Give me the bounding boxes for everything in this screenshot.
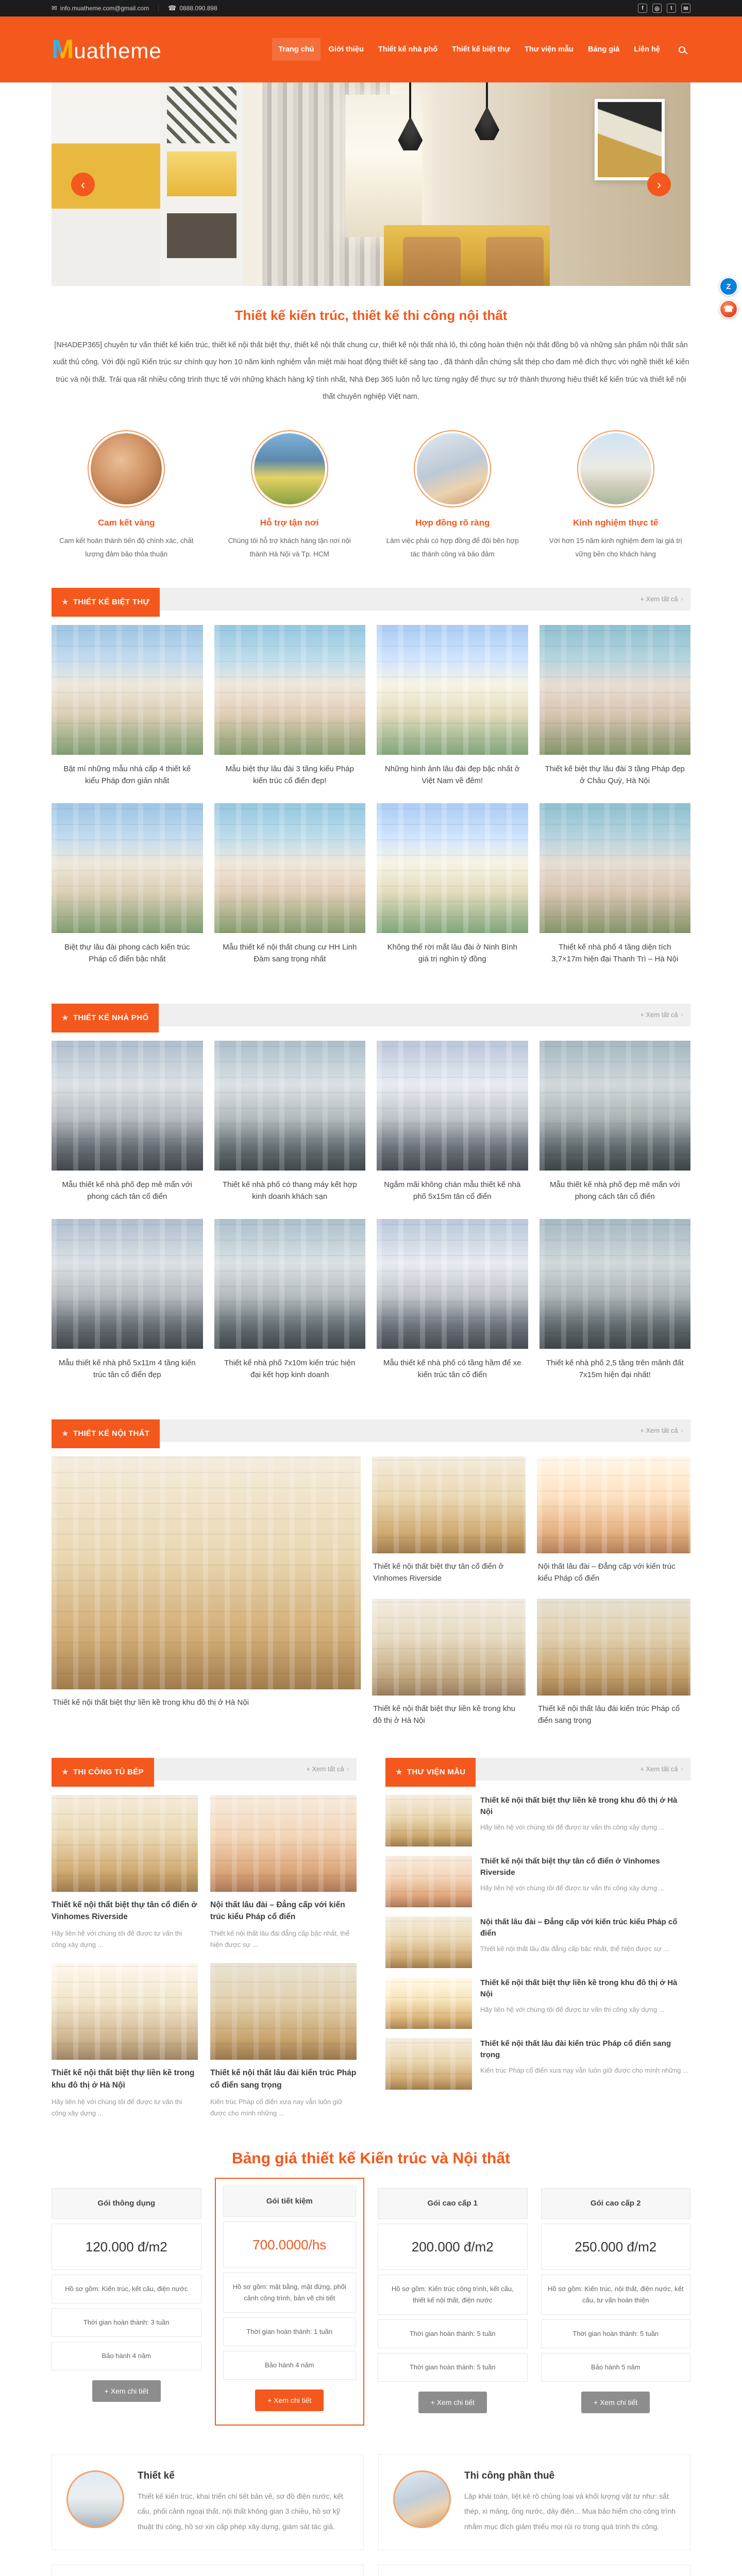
view-all-tu-bep[interactable]: + Xem tất cả › — [306, 1765, 357, 1773]
plan-name: Gói cao cấp 2 — [541, 2188, 691, 2219]
nav-thiet-ke-nha-pho[interactable]: Thiết kế nhà phố — [372, 38, 444, 61]
chevron-right-icon: › — [681, 1765, 683, 1773]
service-desc: Lập khái toán, liệt kê rõ chủng loại và … — [464, 2489, 676, 2534]
post-thumbnail — [377, 1219, 528, 1349]
instagram-icon[interactable]: ◎ — [652, 4, 662, 13]
topbar-email-text: info.muatheme.com@gmail.com — [60, 5, 149, 12]
hero-scene-pendant-lamp — [486, 82, 488, 108]
post-card[interactable]: Mẫu thiết kế nội thất chung cư HH Linh Đ… — [214, 803, 366, 977]
post-title: Thiết kế nội thất lâu đài kiến trúc Pháp… — [210, 2067, 357, 2091]
section-title-thu-vien: ★ THƯ VIỆN MẪU — [385, 1758, 476, 1787]
view-all-text: + Xem tất cả — [306, 1765, 344, 1773]
section-head-thu-vien: ★ THƯ VIỆN MẪU + Xem tất cả › — [385, 1758, 690, 1781]
chevron-right-icon: › — [681, 1427, 683, 1434]
nav-thiet-ke-biet-thu[interactable]: Thiết kế biệt thự — [446, 38, 516, 61]
post-thumbnail — [539, 625, 691, 755]
post-card[interactable]: Thiết kế nội thất biệt thự tân cổ điển ở… — [372, 1456, 526, 1588]
feature-cam-ket-vang: Cam kết vàng Cam kết hoàn thành tiến độ … — [52, 430, 201, 561]
thu-vien-list: Thiết kế nội thất biệt thự liền kề trong… — [385, 1795, 690, 2090]
plan-feature: Thời gian hoàn thành: 5 tuần — [541, 2319, 691, 2348]
post-title: Mẫu thiết kế nội thất chung cư HH Linh Đ… — [214, 933, 366, 977]
post-thumbnail — [385, 1977, 472, 2029]
post-excerpt: Thiết kế nội thất lâu đài đẳng cấp bậc n… — [210, 1928, 357, 1951]
post-thumbnail — [214, 1041, 366, 1171]
service-title: Thiết kế — [138, 2470, 349, 2482]
post-title: Thiết kế nhà phố 2,5 tầng trên mảnh đất … — [539, 1349, 691, 1393]
section-title-noi-that: ★ THIẾT KẾ NỘI THẤT — [52, 1419, 160, 1448]
feature-kinh-nghiem-thuc-te: Kinh nghiệm thực tế Với hơn 15 năm kinh … — [541, 430, 691, 561]
post-title: Thiết kế nội thất biệt thự liền kề trong… — [480, 1795, 690, 1818]
post-title: Thiết kế nội thất biệt thự liền kề trong… — [480, 1977, 690, 2001]
feature-desc: Cam kết hoàn thành tiến độ chính xác, ch… — [52, 534, 201, 561]
chevron-right-icon: › — [657, 178, 662, 191]
post-thumbnail — [385, 1856, 472, 1907]
plan-detail-button[interactable]: + Xem chi tiết — [255, 2389, 324, 2411]
post-title: Thiết kế nội thất biệt thự tân cổ điển ở… — [372, 1553, 526, 1588]
hero-carousel: ‹ › — [52, 82, 690, 286]
post-card[interactable]: Thiết kế nội thất lâu đài kiến trúc Pháp… — [537, 1599, 690, 1730]
topbar-phone-link[interactable]: ☎ 0888.090.898 — [168, 4, 217, 12]
section-head-tu-bep: ★ THI CÔNG TỦ BẾP + Xem tất cả › — [52, 1758, 357, 1781]
post-card[interactable]: Mẫu thiết kế nhà phố có tầng hầm để xe k… — [377, 1219, 528, 1393]
section-title-text: THI CÔNG TỦ BẾP — [73, 1768, 144, 1776]
villa-photo — [580, 433, 651, 504]
list-item[interactable]: Thiết kế nội thất biệt thự liền kề trong… — [385, 1795, 690, 1846]
post-card[interactable]: Mẫu thiết kế nhà phố 5x11m 4 tầng kiến t… — [52, 1219, 203, 1393]
post-thumbnail — [385, 1795, 472, 1846]
post-title: Thiết kế nhà phố 7x10m kiến trúc hiện đạ… — [214, 1349, 366, 1393]
list-item[interactable]: Nội thất lâu đài – Đẳng cấp với kiến trú… — [385, 1917, 690, 1968]
post-title: Thiết kế nhà phố có thang máy kết hợp ki… — [214, 1171, 366, 1214]
plan-feature: Bảo hành 4 năm — [223, 2351, 357, 2380]
post-title: Nội thất lâu đài – Đẳng cấp với kiến trú… — [480, 1917, 690, 1940]
list-item[interactable]: Thiết kế nội thất biệt thự tân cổ điển ở… — [385, 1856, 690, 1907]
view-all-text: + Xem tất cả — [640, 1011, 678, 1019]
service-thiet-ke: Thiết kế Thiết kế kiến trúc, khai triển … — [52, 2454, 364, 2550]
pricing-plan-cao-cap-2: Gói cao cấp 2 250.000 đ/m2 Hồ sơ gồm: Ki… — [541, 2188, 691, 2413]
list-item[interactable]: Thiết kế nội thất biệt thự liền kề trong… — [385, 1977, 690, 2029]
post-title: Thiết kế nội thất biệt thự liền kề trong… — [372, 1696, 526, 1730]
post-thumbnail — [214, 803, 366, 933]
section-title-text: THIẾT KẾ NHÀ PHỐ — [73, 1013, 148, 1022]
feature-desc: Với hơn 15 năm kinh nghiệm đem lại giá t… — [541, 534, 691, 561]
plan-detail-button[interactable]: + Xem chi tiết — [418, 2392, 487, 2413]
nha-pho-grid-row-1: Mẫu thiết kế nhà phố đẹp mê mẩn với phon… — [52, 1041, 690, 1214]
plan-price: 120.000 đ/m2 — [52, 2224, 201, 2270]
writing-hand-photo — [393, 2470, 451, 2528]
plan-feature: Hồ sơ gồm: Kiến trúc công trình, kết cấu… — [378, 2275, 528, 2315]
main-nav: Trang chủ Giới thiệu Thiết kế nhà phố Th… — [272, 38, 690, 61]
feature-title: Hỗ trợ tận nơi — [215, 518, 365, 528]
plan-feature: Thời gian hoàn thành: 1 tuần — [223, 2317, 357, 2346]
post-title: Thiết kế nội thất biệt thự tân cổ điển ở… — [480, 1856, 690, 1879]
post-title: Thiết kế biệt thự lâu đài 3 tầng Pháp đẹ… — [539, 755, 691, 799]
post-card[interactable]: Thiết kế nhà phố 4 tầng diện tích 3,7×17… — [539, 803, 691, 977]
featured-post-card[interactable]: Thiết kế nội thất biệt thự liền kề trong… — [52, 1456, 361, 1730]
feature-photo-frame — [414, 430, 491, 507]
view-all-text: + Xem tất cả — [640, 1427, 678, 1434]
plan-name: Gói thông dụng — [52, 2188, 201, 2219]
plan-feature: Hồ sơ gồm: Kiến trúc, nội thất, điện nướ… — [541, 2275, 691, 2315]
chevron-right-icon: › — [347, 1765, 349, 1773]
plan-feature: Bảo hành 5 năm — [541, 2353, 691, 2382]
pricing-title: Bảng giá thiết kế Kiến trúc và Nội thất — [52, 2150, 690, 2167]
post-title: Những hình ảnh lâu đài đẹp bậc nhất ở Vi… — [377, 755, 528, 799]
post-card[interactable]: Nội thất lâu đài – Đẳng cấp với kiến trú… — [210, 1795, 357, 1951]
contract-photo — [417, 433, 488, 504]
post-card[interactable]: Nội thất lâu đài – Đẳng cấp với kiến trú… — [537, 1456, 690, 1588]
post-title: Không thể rời mắt lâu đài ở Ninh Bình gi… — [377, 933, 528, 977]
plan-price: 250.000 đ/m2 — [541, 2224, 691, 2270]
post-thumbnail — [372, 1456, 526, 1553]
section-title-text: THIẾT KẾ BIỆT THỰ — [73, 598, 149, 606]
post-title: Ngắm mãi không chán mẫu thiết kế nhà phố… — [377, 1171, 528, 1214]
construction-photo — [254, 433, 325, 504]
email-icon: ✉ — [52, 4, 57, 12]
zalo-chat-button[interactable]: Z — [719, 277, 738, 296]
logo-text: uatheme — [74, 39, 161, 63]
feature-title: Kinh nghiệm thực tế — [541, 518, 691, 528]
post-excerpt: Thiết kế nội thất lâu đài đẳng cấp bậc n… — [480, 1943, 690, 1955]
plan-price: 200.000 đ/m2 — [378, 2224, 528, 2270]
biet-thu-grid-row-2: Biệt thự lâu đài phong cách kiến trúc Ph… — [52, 803, 690, 977]
carousel-prev-button[interactable]: ‹ — [71, 173, 95, 196]
post-title: Bật mí những mẫu nhà cấp 4 thiết kế kiểu… — [52, 755, 203, 799]
intro-title: Thiết kế kiến trúc, thiết kế thi công nộ… — [52, 308, 690, 324]
post-card[interactable]: Thiết kế biệt thự lâu đài 3 tầng Pháp đẹ… — [539, 625, 691, 799]
view-all-noi-that[interactable]: + Xem tất cả › — [640, 1427, 690, 1434]
view-all-text: + Xem tất cả — [640, 595, 678, 603]
post-card[interactable]: Mẫu biệt thự lâu đài 3 tầng kiểu Pháp ki… — [214, 625, 366, 799]
tu-bep-column: ★ THI CÔNG TỦ BẾP + Xem tất cả › Thiết k… — [52, 1758, 357, 2119]
twitter-icon[interactable]: t — [667, 4, 676, 13]
post-thumbnail — [52, 803, 203, 933]
topbar-email-link[interactable]: ✉ info.muatheme.com@gmail.com — [52, 4, 149, 12]
post-thumbnail — [372, 1599, 526, 1696]
handshake-photo — [91, 433, 162, 504]
post-card[interactable]: Bật mí những mẫu nhà cấp 4 thiết kế kiểu… — [52, 625, 203, 799]
post-card[interactable]: Mẫu thiết kế nhà phố đẹp mê mẩn với phon… — [539, 1041, 691, 1214]
service-desc: Thiết kế kiến trúc, khai triển chi tiết … — [138, 2489, 349, 2534]
post-title: Mẫu thiết kế nhà phố đẹp mê mẩn với phon… — [52, 1171, 203, 1214]
post-thumbnail — [377, 625, 528, 755]
section-title-biet-thu: ★ THIẾT KẾ BIỆT THỰ — [52, 588, 160, 617]
post-thumbnail — [539, 1041, 691, 1171]
post-title: Mẫu thiết kế nhà phố 5x11m 4 tầng kiến t… — [52, 1349, 203, 1393]
services-grid: Thiết kế Thiết kế kiến trúc, khai triển … — [52, 2454, 690, 2576]
post-title: Thiết kế nội thất biệt thự tân cổ điển ở… — [52, 1899, 198, 1923]
plan-detail-button[interactable]: + Xem chi tiết — [92, 2380, 161, 2402]
post-card[interactable]: Mẫu thiết kế nhà phố đẹp mê mẩn với phon… — [52, 1041, 203, 1214]
post-card[interactable]: Thiết kế nội thất biệt thự liền kề trong… — [372, 1599, 526, 1730]
logo-m-mark: M — [52, 36, 74, 63]
mail-icon[interactable]: ✉ — [681, 4, 690, 13]
post-title: Biệt thự lâu đài phong cách kiến trúc Ph… — [52, 933, 203, 977]
features-row: Cam kết vàng Cam kết hoàn thành tiến độ … — [52, 430, 690, 561]
pricing-plan-tiet-kiem: Gói tiết kiệm 700.0000/hs Hồ sơ gồm: mặt… — [215, 2178, 365, 2426]
post-card[interactable]: Không thể rời mắt lâu đài ở Ninh Bình gi… — [377, 803, 528, 977]
post-excerpt: Kiến trúc Pháp cổ điển xưa nay vẫn luôn … — [480, 2065, 690, 2076]
hero-scene-chair — [403, 237, 461, 286]
phone-icon: ☎ — [168, 4, 176, 12]
pricing-plan-cao-cap-1: Gói cao cấp 1 200.000 đ/m2 Hồ sơ gồm: Ki… — [378, 2188, 528, 2413]
star-icon: ★ — [62, 1429, 69, 1438]
nav-lien-he[interactable]: Liên hệ — [628, 38, 666, 61]
villa-sketch-photo — [66, 2470, 124, 2528]
post-thumbnail — [52, 625, 203, 755]
nha-pho-grid-row-2: Mẫu thiết kế nhà phố 5x11m 4 tầng kiến t… — [52, 1219, 690, 1393]
thu-vien-column: ★ THƯ VIỆN MẪU + Xem tất cả › Thiết kế n… — [385, 1758, 690, 2119]
post-excerpt: Hãy liên hệ với chúng tôi để được tư vấn… — [480, 2004, 690, 2015]
section-head-noi-that: ★ THIẾT KẾ NỘI THẤT + Xem tất cả › — [52, 1419, 690, 1442]
chevron-right-icon: › — [681, 1011, 683, 1019]
topbar-divider — [158, 5, 159, 12]
post-thumbnail — [214, 625, 366, 755]
post-title: Mẫu thiết kế nhà phố đẹp mê mẩn với phon… — [539, 1171, 691, 1214]
facebook-icon[interactable]: f — [638, 4, 647, 13]
feature-hop-dong-ro-rang: Hợp đồng rõ ràng Làm việc phải có hợp đồ… — [378, 430, 528, 561]
post-title: Mẫu thiết kế nhà phố có tầng hầm để xe k… — [377, 1349, 528, 1393]
post-excerpt: Hãy liên hệ với chúng tôi để được tư vấn… — [52, 1928, 198, 1951]
post-excerpt: Hãy liên hệ với chúng tôi để được tư vấn… — [480, 1822, 690, 1833]
carousel-next-button[interactable]: › — [647, 173, 671, 196]
nav-trang-chu[interactable]: Trang chủ — [272, 38, 320, 61]
plan-feature: Thời gian hoàn thành: 3 tuần — [52, 2308, 201, 2337]
noi-that-grid: Thiết kế nội thất biệt thự liền kề trong… — [52, 1456, 690, 1730]
post-card[interactable]: Biệt thự lâu đài phong cách kiến trúc Ph… — [52, 803, 203, 977]
plan-feature: Hồ sơ gồm: Kiến trúc, kết cấu, điện nước — [52, 2275, 201, 2303]
section-title-nha-pho: ★ THIẾT KẾ NHÀ PHỐ — [52, 1004, 159, 1032]
chevron-left-icon: ‹ — [81, 178, 86, 191]
post-card[interactable]: Ngắm mãi không chán mẫu thiết kế nhà phố… — [377, 1041, 528, 1214]
search-button[interactable] — [673, 41, 690, 58]
post-thumbnail — [210, 1795, 357, 1892]
post-title: Nội thất lâu đài – Đẳng cấp với kiến trú… — [210, 1899, 357, 1923]
service-title: Thi công phần thuê — [464, 2470, 676, 2482]
post-thumbnail — [52, 1795, 198, 1892]
post-title: Mẫu biệt thự lâu đài 3 tầng kiểu Pháp ki… — [214, 755, 366, 799]
section-title-tu-bep: ★ THI CÔNG TỦ BẾP — [52, 1758, 154, 1787]
section-title-text: THƯ VIỆN MẪU — [407, 1768, 466, 1776]
site-logo[interactable]: M uatheme — [52, 36, 162, 63]
plan-feature: Thời gian hoàn thành: 5 tuần — [378, 2319, 528, 2348]
post-title: Thiết kế nội thất lâu đài kiến trúc Pháp… — [480, 2038, 690, 2061]
view-all-nha-pho[interactable]: + Xem tất cả › — [640, 1011, 690, 1019]
feature-ho-tro-tan-noi: Hỗ trợ tận nơi Chúng tôi hỗ trợ khách hà… — [215, 430, 365, 561]
section-head-nha-pho: ★ THIẾT KẾ NHÀ PHỐ + Xem tất cả › — [52, 1004, 690, 1026]
post-title: Thiết kế nội thất biệt thự liền kề trong… — [52, 2067, 198, 2091]
post-card[interactable]: Thiết kế nội thất biệt thự liền kề trong… — [52, 1963, 198, 2119]
post-card[interactable]: Thiết kế nhà phố 2,5 tầng trên mảnh đất … — [539, 1219, 691, 1393]
plan-name: Gói cao cấp 1 — [378, 2188, 528, 2219]
floating-contact-buttons: Z ☎ — [719, 277, 738, 318]
post-thumbnail — [377, 1041, 528, 1171]
post-card[interactable]: Thiết kế nhà phố có thang máy kết hợp ki… — [214, 1041, 366, 1214]
nav-thu-vien-mau[interactable]: Thư viện mẫu — [518, 38, 580, 61]
post-thumbnail — [385, 1917, 472, 1968]
nav-bang-gia[interactable]: Bảng giá — [582, 38, 626, 61]
view-all-biet-thu[interactable]: + Xem tất cả › — [640, 595, 690, 603]
service-noi-that: Nội thất Liệt kê đầy đủ các vật dụng nội… — [378, 2565, 690, 2576]
post-thumbnail — [214, 1219, 366, 1349]
star-icon: ★ — [396, 1768, 402, 1776]
post-card[interactable]: Thiết kế nội thất biệt thự tân cổ điển ở… — [52, 1795, 198, 1951]
post-card[interactable]: Những hình ảnh lâu đài đẹp bậc nhất ở Vi… — [377, 625, 528, 799]
feature-photo-frame — [88, 430, 165, 507]
section-title-text: THIẾT KẾ NỘI THẤT — [73, 1429, 149, 1438]
post-title: Thiết kế nội thất lâu đài kiến trúc Pháp… — [537, 1696, 690, 1730]
tu-bep-grid: Thiết kế nội thất biệt thự tân cổ điển ở… — [52, 1795, 357, 2119]
service-hoan-thien: Hoàn thiện Lắp đặt cửa, lót sàn, trần th… — [52, 2565, 364, 2576]
post-thumbnail — [210, 1963, 357, 2060]
pricing-table: Gói thông dụng 120.000 đ/m2 Hồ sơ gồm: K… — [52, 2188, 690, 2426]
plan-detail-button[interactable]: + Xem chi tiết — [581, 2392, 650, 2413]
view-all-thu-vien[interactable]: + Xem tất cả › — [640, 1765, 690, 1773]
topbar: ✉ info.muatheme.com@gmail.com ☎ 0888.090… — [0, 0, 742, 16]
hero-scene-artwork — [595, 99, 665, 180]
feature-desc: Chúng tôi hỗ trợ khách hàng tận nơi nội … — [215, 534, 365, 561]
post-title: Nội thất lâu đài – Đẳng cấp với kiến trú… — [537, 1553, 690, 1588]
post-thumbnail — [52, 1041, 203, 1171]
post-title: Thiết kế nội thất biệt thự liền kề trong… — [52, 1689, 361, 1711]
feature-title: Cam kết vàng — [52, 518, 201, 528]
feature-desc: Làm việc phải có hợp đồng để đôi bên hợp… — [378, 534, 528, 561]
post-card[interactable]: Thiết kế nội thất lâu đài kiến trúc Pháp… — [210, 1963, 357, 2119]
post-thumbnail — [385, 2038, 472, 2090]
post-thumbnail — [377, 803, 528, 933]
list-item[interactable]: Thiết kế nội thất lâu đài kiến trúc Pháp… — [385, 2038, 690, 2090]
post-thumbnail — [52, 1219, 203, 1349]
pricing-plan-thong-dung: Gói thông dụng 120.000 đ/m2 Hồ sơ gồm: K… — [52, 2188, 201, 2402]
hero-scene-pendant-lamp — [409, 82, 411, 118]
post-thumbnail — [539, 803, 691, 933]
post-thumbnail — [52, 1456, 361, 1689]
feature-photo-frame — [251, 430, 328, 507]
hero-scene-wine-rack — [160, 82, 243, 286]
post-excerpt: Kiến trúc Pháp cổ điển xưa nay vẫn luôn … — [210, 2096, 357, 2119]
plan-feature: Hồ sơ gồm: mặt bằng, mặt đứng, phối cảnh… — [223, 2273, 357, 2313]
post-excerpt: Hãy liên hệ với chúng tôi để được tư vấn… — [52, 2096, 198, 2119]
topbar-phone-text: 0888.090.898 — [179, 5, 217, 12]
plan-feature: Thời gian hoàn thành: 5 tuần — [378, 2353, 528, 2382]
plan-name: Gói tiết kiệm — [223, 2186, 357, 2217]
chevron-right-icon: › — [681, 595, 683, 603]
hero-slide-image[interactable] — [52, 82, 690, 286]
two-column-sections: ★ THI CÔNG TỦ BẾP + Xem tất cả › Thiết k… — [52, 1758, 690, 2119]
feature-photo-frame — [577, 430, 654, 507]
star-icon: ★ — [62, 1013, 69, 1022]
post-card[interactable]: Thiết kế nhà phố 7x10m kiến trúc hiện đạ… — [214, 1219, 366, 1393]
post-thumbnail — [539, 1219, 691, 1349]
plan-feature: Bảo hành 4 năm — [52, 2342, 201, 2370]
hero-scene-chair — [486, 237, 544, 286]
post-title: Thiết kế nhà phố 4 tầng diện tích 3,7×17… — [539, 933, 691, 977]
star-icon: ★ — [62, 598, 69, 606]
post-excerpt: Hãy liên hệ với chúng tôi để được tư vấn… — [480, 1883, 690, 1894]
service-thi-cong: Thi công phần thuê Lập khái toán, liệt k… — [378, 2454, 690, 2550]
post-thumbnail — [537, 1599, 690, 1696]
post-thumbnail — [537, 1456, 690, 1553]
section-head-biet-thu: ★ THIẾT KẾ BIỆT THỰ + Xem tất cả › — [52, 588, 690, 611]
call-button[interactable]: ☎ — [719, 300, 738, 318]
view-all-text: + Xem tất cả — [640, 1765, 678, 1773]
nav-gioi-thieu[interactable]: Giới thiệu — [323, 38, 370, 61]
search-icon — [679, 46, 685, 53]
star-icon: ★ — [62, 1768, 69, 1776]
biet-thu-grid-row-1: Bật mí những mẫu nhà cấp 4 thiết kế kiểu… — [52, 625, 690, 799]
intro-body: [NHADEP365] chuyên tư vấn thiết kế kiến … — [52, 337, 690, 405]
feature-title: Hợp đồng rõ ràng — [378, 518, 528, 528]
hero-scene-kitchen — [52, 82, 160, 286]
site-header: M uatheme Trang chủ Giới thiệu Thiết kế … — [0, 16, 742, 82]
plan-price: 700.0000/hs — [223, 2222, 357, 2268]
post-thumbnail — [52, 1963, 198, 2060]
